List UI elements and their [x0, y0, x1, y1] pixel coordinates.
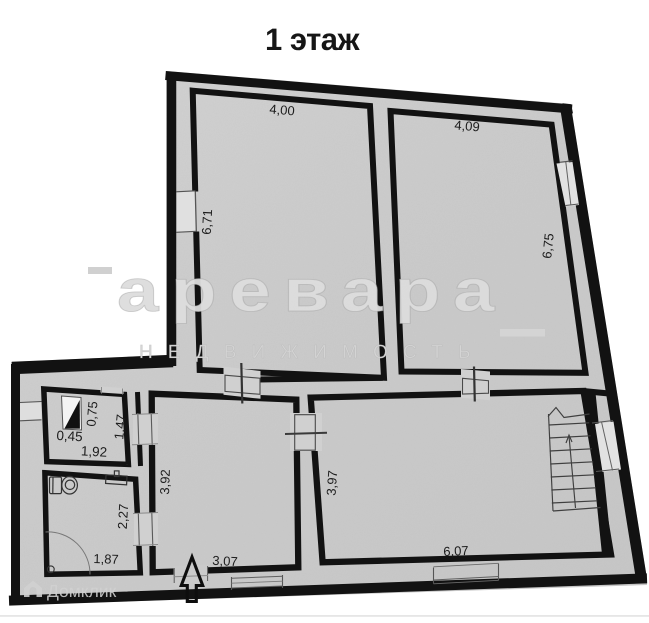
svg-text:1,47: 1,47	[111, 414, 129, 441]
svg-text:1,92: 1,92	[81, 443, 108, 459]
svg-text:2,27: 2,27	[115, 503, 131, 529]
svg-text:аревара: аревара	[117, 257, 507, 324]
svg-text:4,00: 4,00	[269, 101, 295, 118]
svg-text:1,87: 1,87	[93, 551, 119, 567]
svg-text:1 этаж: 1 этаж	[265, 22, 360, 57]
svg-text:Домклик: Домклик	[47, 581, 117, 601]
svg-text:6,71: 6,71	[199, 209, 215, 235]
svg-text:3,07: 3,07	[212, 553, 238, 569]
svg-text:6,07: 6,07	[443, 543, 469, 559]
svg-text:0,75: 0,75	[83, 401, 100, 428]
svg-text:0,45: 0,45	[56, 428, 83, 444]
svg-text:4,09: 4,09	[454, 117, 480, 134]
svg-text:3,97: 3,97	[324, 470, 341, 496]
svg-text:3,92: 3,92	[157, 469, 173, 495]
svg-text:6,75: 6,75	[539, 233, 557, 260]
